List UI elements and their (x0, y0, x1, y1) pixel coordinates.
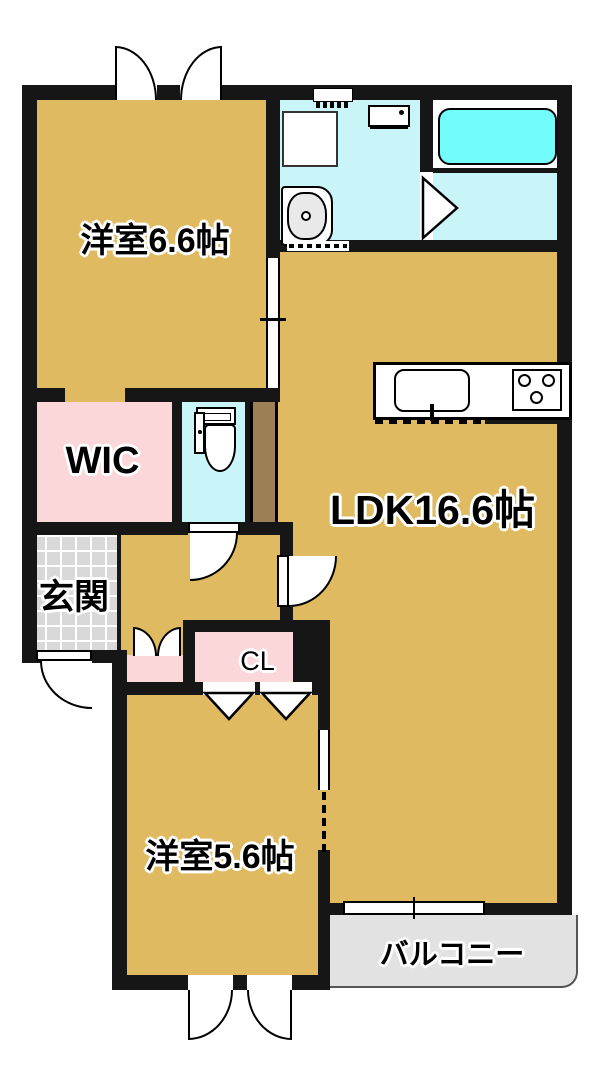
label-bedroom2: 洋室5.6帖 (105, 828, 335, 878)
panel-dot (399, 110, 404, 115)
label-wic: WIC (55, 438, 150, 484)
cl-door-gap-right (260, 682, 312, 695)
water-heater-panel (368, 105, 410, 127)
kitchen-dashed-line (375, 419, 483, 424)
door-leaf-entrance (36, 650, 92, 661)
wall-ldk-left-upper (280, 522, 293, 557)
door-leaf-toilet (188, 522, 240, 533)
label-ldk: LDK16.6帖 (310, 478, 555, 534)
cl-door-gap-left (203, 682, 255, 695)
wall-bedroom2-bottom-b (233, 975, 247, 990)
bathtub (438, 108, 557, 165)
washing-machine-pan (282, 111, 338, 167)
wall-top (22, 85, 572, 100)
stove-burner-3 (530, 391, 543, 404)
stove-burner-1 (518, 374, 531, 387)
shoe-cabinet (124, 655, 185, 685)
toilet-tank-inner (203, 413, 231, 421)
wall-toilet-right (245, 400, 250, 522)
label-closet: CL (225, 644, 290, 678)
label-entrance: 玄関 (34, 572, 114, 616)
label-bedroom1: 洋室6.6帖 (40, 212, 270, 262)
wall-balcony-left (318, 903, 330, 990)
window-gap-bedroom2-left (188, 975, 233, 990)
wall-wic-toilet (172, 402, 182, 522)
floor-plan: 洋室6.6帖 LDK16.6帖 WIC 玄関 CL 洋室5.6帖 バルコニー (0, 0, 604, 1089)
sliding-door-bedroom2-ldk (318, 730, 330, 790)
sliding-window-tick (413, 897, 415, 919)
wall-bath-divider (420, 92, 433, 172)
doorway-bath (420, 172, 433, 240)
window-bedroom2-left (188, 990, 233, 1040)
wall-ldk-bottom-a (318, 903, 343, 915)
wall-hall-tile-edge (117, 535, 121, 650)
wall-right (557, 85, 572, 915)
window-gap-bedroom2-right (247, 975, 292, 990)
door-pocket-brown (250, 400, 278, 522)
wall-mid-b (125, 388, 280, 402)
window-bedroom2-right (247, 990, 292, 1040)
outside-mask (0, 663, 112, 1083)
vent (313, 88, 353, 102)
room-bath-lower (433, 172, 557, 240)
double-door-bedroom1-left (115, 46, 157, 100)
door-leaf-ldk (277, 555, 289, 607)
vent-teeth (316, 102, 350, 108)
room-bedroom2 (118, 655, 330, 985)
double-door-bedroom1-right (180, 46, 222, 100)
stove-burner-2 (542, 374, 555, 387)
wall-mid-a (22, 388, 65, 402)
label-balcony: バルコニー (352, 934, 552, 970)
wall-bedroom2-bottom-a (112, 975, 188, 990)
sliding-door-bedroom1-ldk (266, 258, 280, 388)
washroom-door-dashes (289, 244, 347, 248)
wall-ldk-bottom-b (485, 903, 572, 915)
wall-bedroom2-right-a (318, 692, 330, 732)
wall-below-wic (22, 522, 188, 535)
sliding-door-tick (260, 318, 286, 321)
wall-bath-mid-line (425, 168, 568, 173)
wall-bedroom2-left (112, 650, 127, 990)
washbasin-drain (301, 211, 311, 221)
toilet-side-dot (198, 430, 202, 434)
